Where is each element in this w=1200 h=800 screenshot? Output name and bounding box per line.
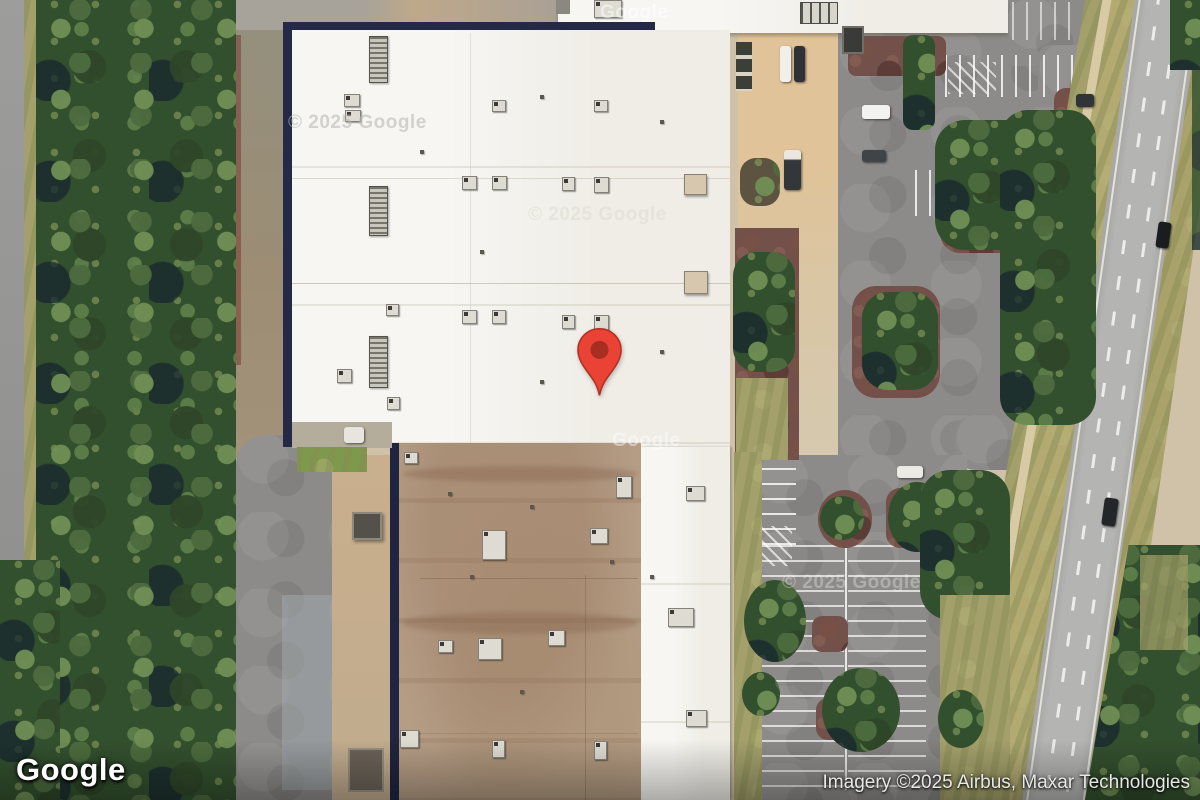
watermark: Google [600,2,668,24]
grass-gap-bottom-right [1140,555,1188,650]
grass-patch-dock [297,447,367,472]
roof-detail [650,575,654,579]
tree [820,496,864,540]
truck [344,427,364,443]
dock-pad [292,422,392,448]
watermark: Google [612,430,680,452]
grass-apron-edge [736,378,788,460]
roof-detail [610,560,614,564]
skylight-grid [800,2,838,24]
roof-detail [448,492,452,496]
rooftop-hvac-unit [562,177,575,191]
rooftop-hvac-unit [686,710,707,727]
roof-detail [520,690,524,694]
satellite-map[interactable]: © 2025 Google © 2025 Google Google Googl… [0,0,1200,800]
gravel-rust-line [236,35,241,365]
rooftop-vent [369,336,388,388]
roof-detail [660,350,664,354]
forest-corner-top-right [1170,0,1200,70]
hedge-row [903,35,935,130]
google-logo[interactable]: Google [16,752,126,788]
roof-detail [470,575,474,579]
trees-island [862,292,938,390]
rooftop-hvac-unit [594,100,608,112]
rooftop-hvac-unit [492,176,507,190]
brush-right-edge [1192,70,1200,250]
roof-seam [470,33,471,443]
rooftop-hvac-unit [590,528,608,544]
rooftop-hvac-unit [492,100,506,112]
car [897,466,923,478]
rooftop-hvac-unit [404,452,418,464]
rooftop-hvac-unit [492,310,506,324]
rooftop-hvac-unit [556,0,570,14]
watermark: © 2025 Google [782,572,921,594]
rooftop-hvac-unit [462,176,477,190]
roof-seam [292,283,730,284]
rooftop-vent [369,186,388,236]
roof-detail [540,380,544,384]
forest-left [36,0,236,800]
no-parking-hatch [948,62,996,94]
roof-stain [402,466,638,482]
rooftop-hvac-unit [686,486,705,501]
roof-stain [402,612,638,634]
location-pin-icon[interactable] [576,326,623,400]
rooftop-hvac-unit [337,369,352,383]
trees-apron-edge [733,252,795,372]
rooftop-hvac-unit [616,476,632,498]
car [862,150,886,162]
rooftop-hvac-unit [548,630,565,646]
parking-island [812,616,848,652]
rooftop-hvac-unit [344,94,360,107]
truck-trailer [780,46,791,82]
roof-detail [530,505,534,509]
warehouse-roof-white [292,30,730,447]
rooftop-hvac-unit [387,397,400,410]
rooftop-hvac-unit [562,315,575,329]
rooftop-hvac-unit [668,608,694,627]
rooftop-hvac-unit [438,640,453,653]
dock-equipment [352,512,382,540]
tree [742,672,780,716]
roof-detail [540,95,544,99]
shrub [740,158,780,206]
truck [784,150,801,190]
trees-roadside-band [1000,110,1096,425]
watermark: © 2025 Google [528,204,667,226]
rooftop-hvac-unit [482,530,506,560]
rooftop-hvac-unit [478,638,502,660]
parking-stalls [1012,2,1070,40]
watermark: © 2025 Google [288,112,427,134]
roof-seam [292,178,730,179]
roof-detail [420,150,424,154]
car [862,105,890,119]
roof-seam [420,578,638,579]
truck-trailer [794,46,805,82]
rooftop-hvac-unit [462,310,477,324]
rooftop-hvac-unit [386,304,399,316]
rooftop-hvac-unit [684,271,708,294]
rooftop-hvac-unit [594,177,609,193]
rooftop-vent [369,36,388,83]
rooftop-hvac-unit [684,174,707,195]
car [1076,94,1094,107]
warehouse-edge-left [283,22,292,447]
roof-detail [480,250,484,254]
rooftop-hvac-unit [842,26,864,54]
roof-detail [660,120,664,124]
imagery-attribution: Imagery ©2025 Airbus, Maxar Technologies [823,772,1190,794]
dumpsters [736,42,752,91]
roof-seam [402,733,638,734]
